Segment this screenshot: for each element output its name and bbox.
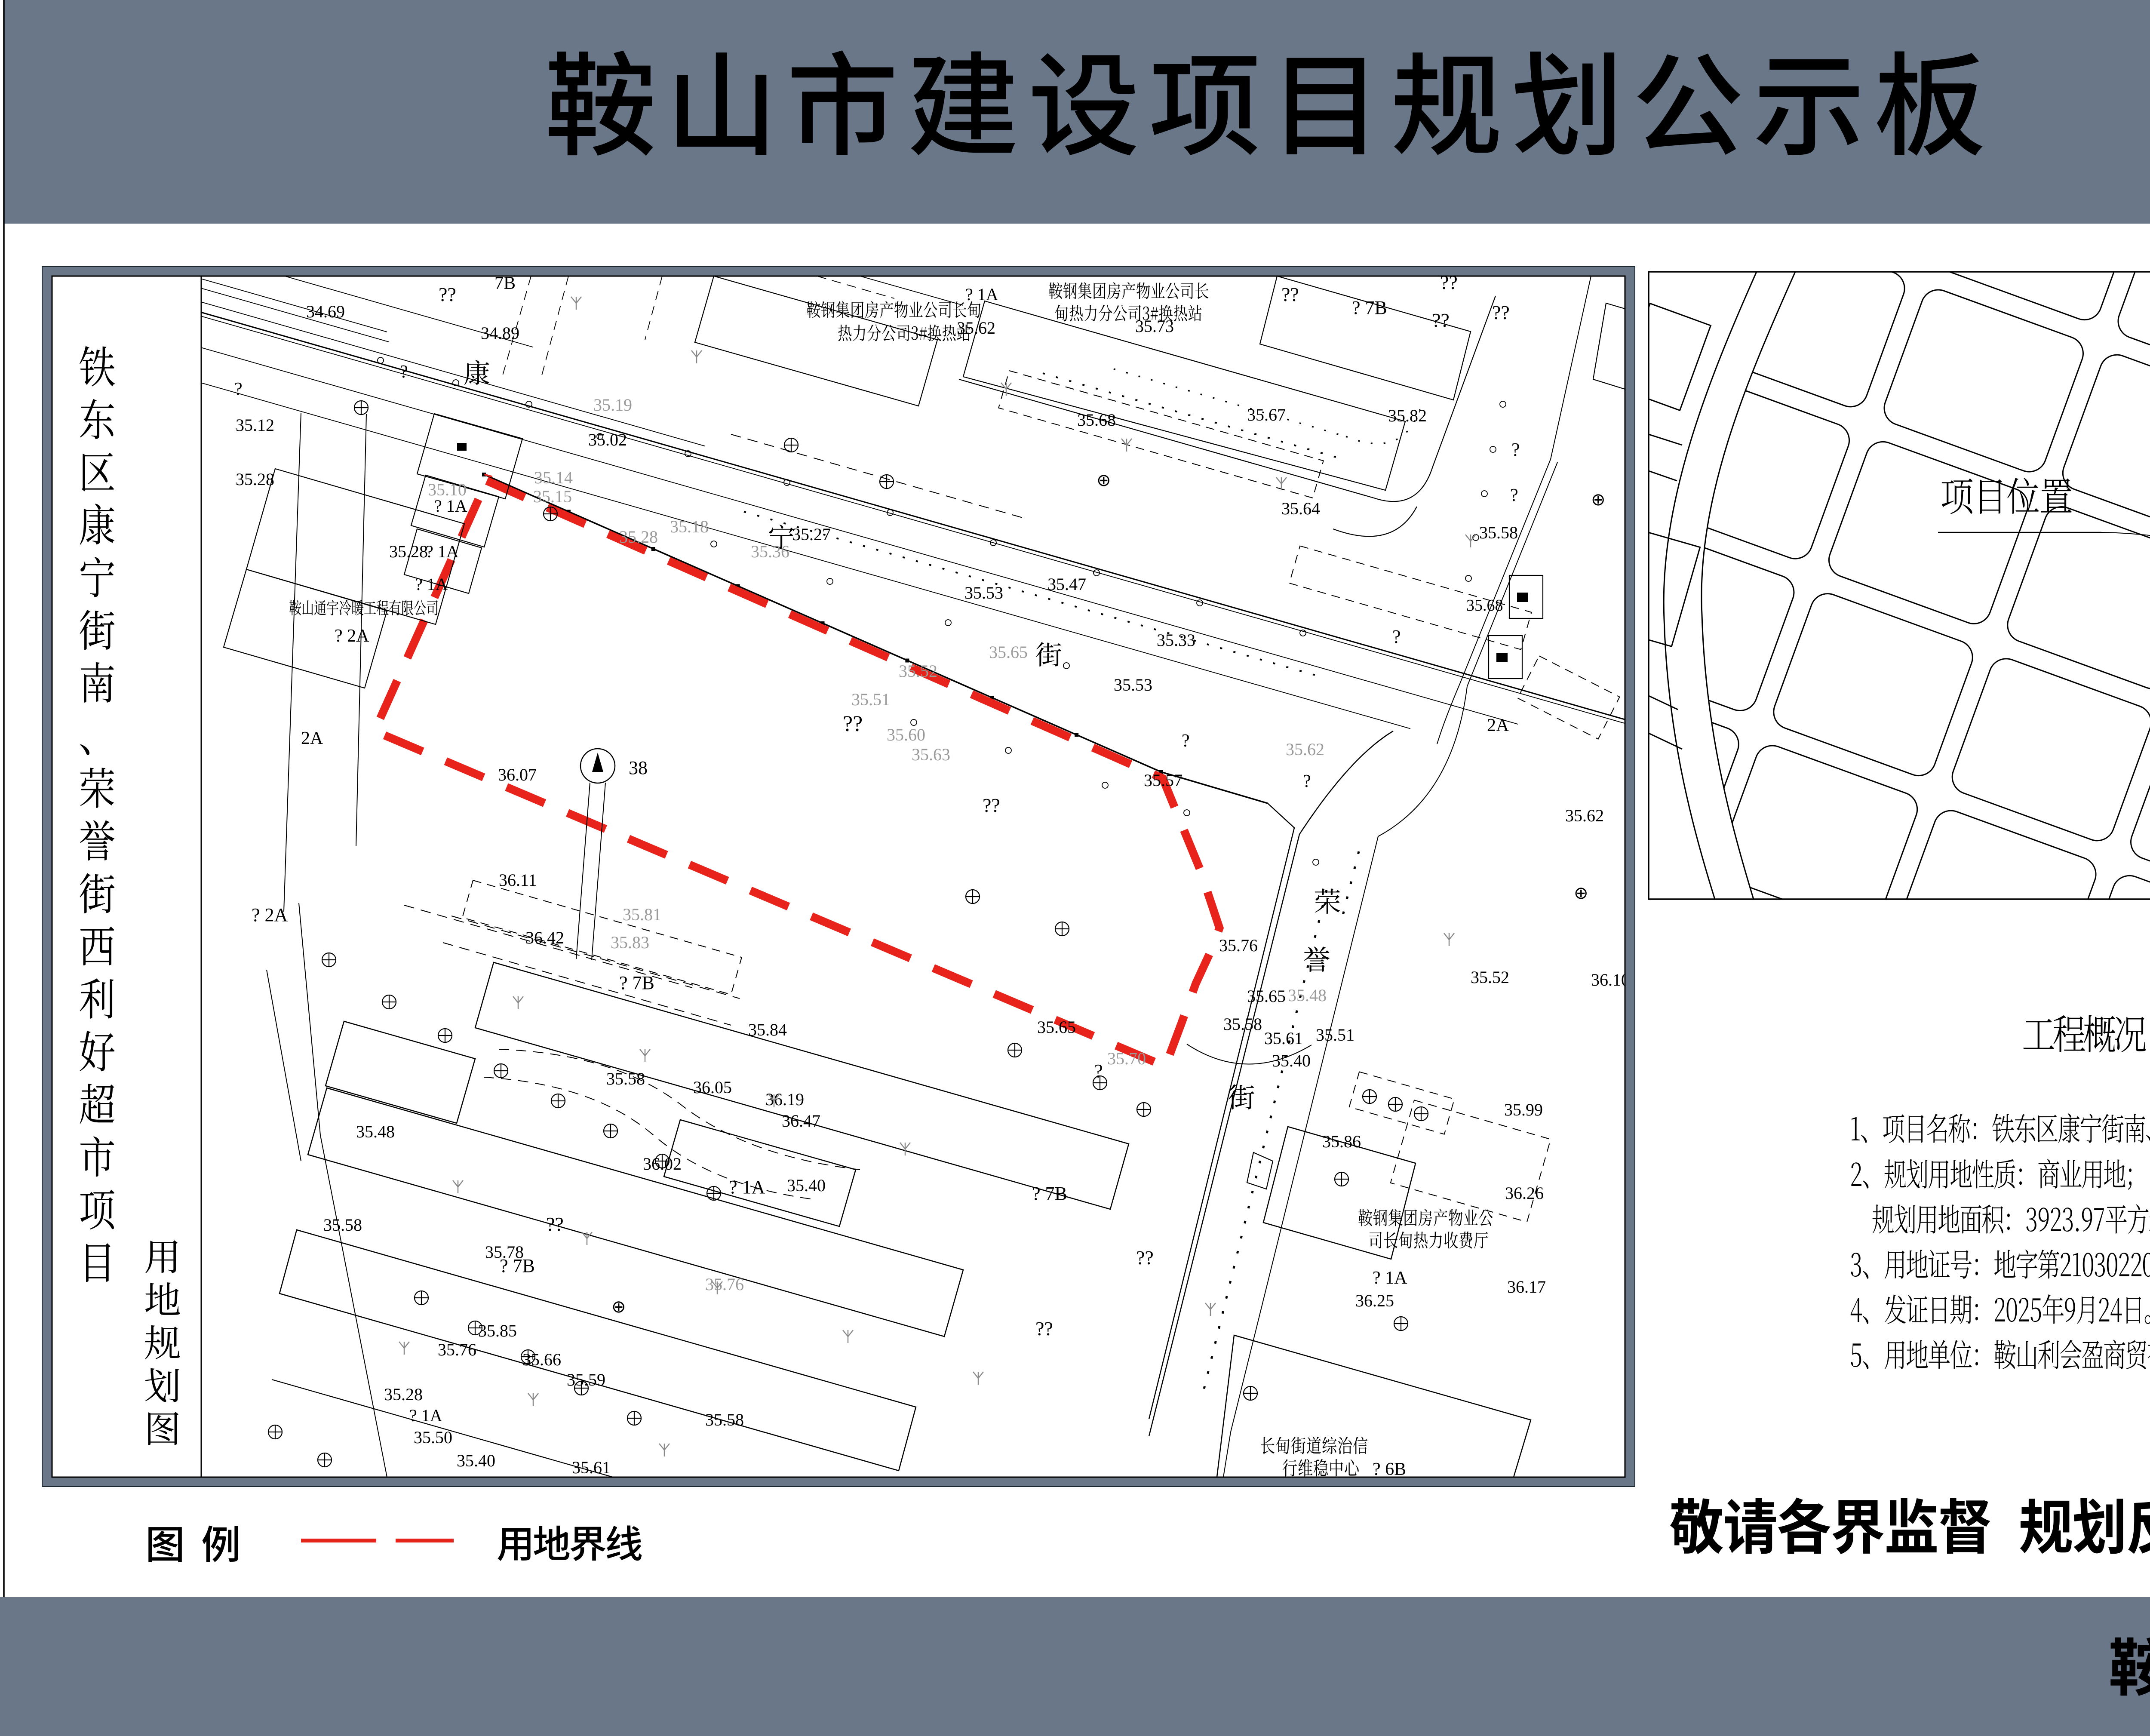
svg-text:??: ??: [1432, 309, 1450, 331]
svg-text:? 6B: ? 6B: [1373, 1459, 1406, 1479]
svg-text:35.47: 35.47: [1047, 575, 1086, 594]
svg-text:?: ?: [234, 379, 243, 399]
svg-text:35.12: 35.12: [236, 415, 274, 435]
svg-text:?: ?: [1511, 439, 1520, 460]
svg-text:??: ??: [843, 712, 863, 736]
svg-text:35.58: 35.58: [323, 1215, 362, 1235]
svg-text:35.40: 35.40: [787, 1176, 826, 1195]
svg-text:??: ??: [1035, 1318, 1053, 1340]
svg-text:35.85: 35.85: [478, 1321, 517, 1340]
svg-text:35.64: 35.64: [1281, 499, 1320, 518]
svg-text:35.14: 35.14: [534, 468, 573, 487]
svg-text:? 7B: ? 7B: [619, 972, 654, 993]
svg-text:36.26: 36.26: [1505, 1183, 1544, 1203]
svg-text:35.19: 35.19: [593, 395, 632, 415]
svg-text:35.62: 35.62: [957, 318, 995, 338]
svg-text:35.51: 35.51: [851, 690, 890, 709]
svg-text:35.76: 35.76: [705, 1275, 744, 1294]
svg-text:35.86: 35.86: [1322, 1132, 1361, 1151]
svg-text:??: ??: [983, 794, 1000, 816]
svg-text:? 7B: ? 7B: [1352, 297, 1387, 318]
svg-text:35.70: 35.70: [1107, 1049, 1146, 1068]
svg-text:? 1A: ? 1A: [426, 542, 459, 561]
svg-text:35.83: 35.83: [611, 933, 649, 952]
svg-text:??: ??: [1492, 301, 1510, 323]
svg-text:⊕: ⊕: [611, 1297, 626, 1316]
svg-text:?: ?: [1182, 731, 1190, 751]
svg-text:35.99: 35.99: [1504, 1100, 1543, 1119]
svg-text:⊕: ⊕: [1096, 470, 1111, 490]
svg-text:? 7B: ? 7B: [1032, 1183, 1067, 1204]
svg-text:35.28: 35.28: [236, 470, 274, 489]
svg-text:? 1A: ? 1A: [965, 285, 998, 304]
svg-text:36.10: 36.10: [1591, 970, 1630, 989]
svg-text:? 1A: ? 1A: [1373, 1268, 1407, 1288]
svg-text:35.57: 35.57: [1144, 771, 1182, 790]
svg-text:35.53: 35.53: [1114, 675, 1152, 694]
svg-text:35.62: 35.62: [1286, 740, 1324, 759]
svg-text:35.10: 35.10: [428, 480, 467, 499]
svg-text:35.58: 35.58: [705, 1410, 744, 1429]
svg-text:35.48: 35.48: [1288, 986, 1327, 1005]
svg-text:35.60: 35.60: [887, 725, 925, 744]
svg-text:36.17: 36.17: [1507, 1277, 1546, 1297]
svg-text:35.82: 35.82: [1388, 406, 1427, 425]
svg-text:35.78: 35.78: [485, 1242, 524, 1262]
svg-text:35.28: 35.28: [619, 527, 658, 547]
svg-text:35.36: 35.36: [751, 542, 789, 561]
svg-text:36.07: 36.07: [498, 765, 537, 784]
svg-text:34.69: 34.69: [306, 302, 345, 321]
svg-text:35.84: 35.84: [748, 1020, 787, 1039]
svg-text:35.51: 35.51: [1316, 1025, 1354, 1045]
svg-text:35.76: 35.76: [438, 1340, 476, 1359]
svg-text:? 2A: ? 2A: [335, 626, 369, 646]
svg-text:35.58: 35.58: [606, 1069, 645, 1088]
svg-text:35.27: 35.27: [792, 525, 831, 544]
svg-text:35.65: 35.65: [1037, 1017, 1076, 1037]
svg-text:?: ?: [1510, 485, 1518, 505]
svg-text:7B: 7B: [494, 273, 516, 293]
svg-text:? 2A: ? 2A: [252, 904, 288, 925]
svg-text:35.02: 35.02: [588, 430, 627, 449]
svg-text:35.50: 35.50: [414, 1428, 452, 1447]
svg-text:2A: 2A: [1487, 716, 1509, 735]
svg-text:38: 38: [629, 757, 648, 778]
svg-text:35.73: 35.73: [1135, 316, 1174, 336]
svg-text:35.15: 35.15: [533, 487, 572, 506]
svg-text:35.52: 35.52: [1471, 968, 1509, 987]
svg-text:⊕: ⊕: [1574, 883, 1588, 903]
svg-text:??: ??: [1136, 1247, 1154, 1269]
svg-text:34.89: 34.89: [481, 323, 519, 343]
svg-text:?: ?: [400, 362, 408, 382]
svg-text:35.48: 35.48: [356, 1122, 395, 1141]
svg-text:35.68: 35.68: [1466, 596, 1503, 615]
svg-text:36.25: 36.25: [1355, 1291, 1394, 1310]
svg-text:36.11: 36.11: [499, 870, 537, 890]
svg-text:35.18: 35.18: [670, 517, 709, 536]
svg-text:35.63: 35.63: [912, 745, 950, 764]
svg-text:36.19: 36.19: [765, 1090, 804, 1109]
svg-text:??: ??: [546, 1213, 564, 1235]
svg-text:35.62: 35.62: [1565, 806, 1604, 825]
svg-text:35.58: 35.58: [1479, 523, 1518, 542]
svg-text:35.61: 35.61: [1264, 1029, 1303, 1048]
svg-text:35.61: 35.61: [572, 1458, 611, 1477]
svg-text:35.81: 35.81: [623, 905, 661, 924]
svg-text:35.68: 35.68: [1077, 410, 1116, 430]
svg-text:35.76: 35.76: [1219, 936, 1258, 955]
svg-text:? 1A: ? 1A: [415, 575, 448, 594]
svg-text:35.52: 35.52: [899, 661, 937, 681]
svg-text:?: ?: [1303, 771, 1311, 791]
svg-text:35.67: 35.67: [1247, 405, 1286, 424]
svg-text:??: ??: [439, 283, 456, 305]
svg-text:35.65: 35.65: [1247, 986, 1286, 1006]
svg-text:35.28: 35.28: [384, 1385, 423, 1404]
svg-text:2A: 2A: [301, 728, 323, 748]
svg-text:35.58: 35.58: [1223, 1014, 1262, 1034]
svg-text:35.59: 35.59: [567, 1370, 605, 1389]
svg-text:35.40: 35.40: [1272, 1051, 1311, 1070]
svg-text:35.40: 35.40: [457, 1451, 495, 1470]
svg-text:36.05: 36.05: [693, 1078, 732, 1097]
svg-text:⊕: ⊕: [1591, 490, 1606, 509]
svg-text:36.47: 36.47: [782, 1111, 820, 1131]
svg-text:35.33: 35.33: [1157, 630, 1195, 650]
svg-text:? 1A: ? 1A: [409, 1406, 442, 1425]
svg-text:35.53: 35.53: [964, 583, 1003, 602]
svg-text:?: ?: [1392, 626, 1401, 647]
svg-text:? 1A: ? 1A: [729, 1177, 765, 1198]
svg-text:35.28: 35.28: [389, 542, 428, 561]
svg-text:36.42: 36.42: [525, 928, 564, 947]
svg-text:35.65: 35.65: [989, 642, 1028, 662]
svg-text:??: ??: [1281, 283, 1299, 305]
svg-text:?: ?: [1094, 1060, 1103, 1082]
